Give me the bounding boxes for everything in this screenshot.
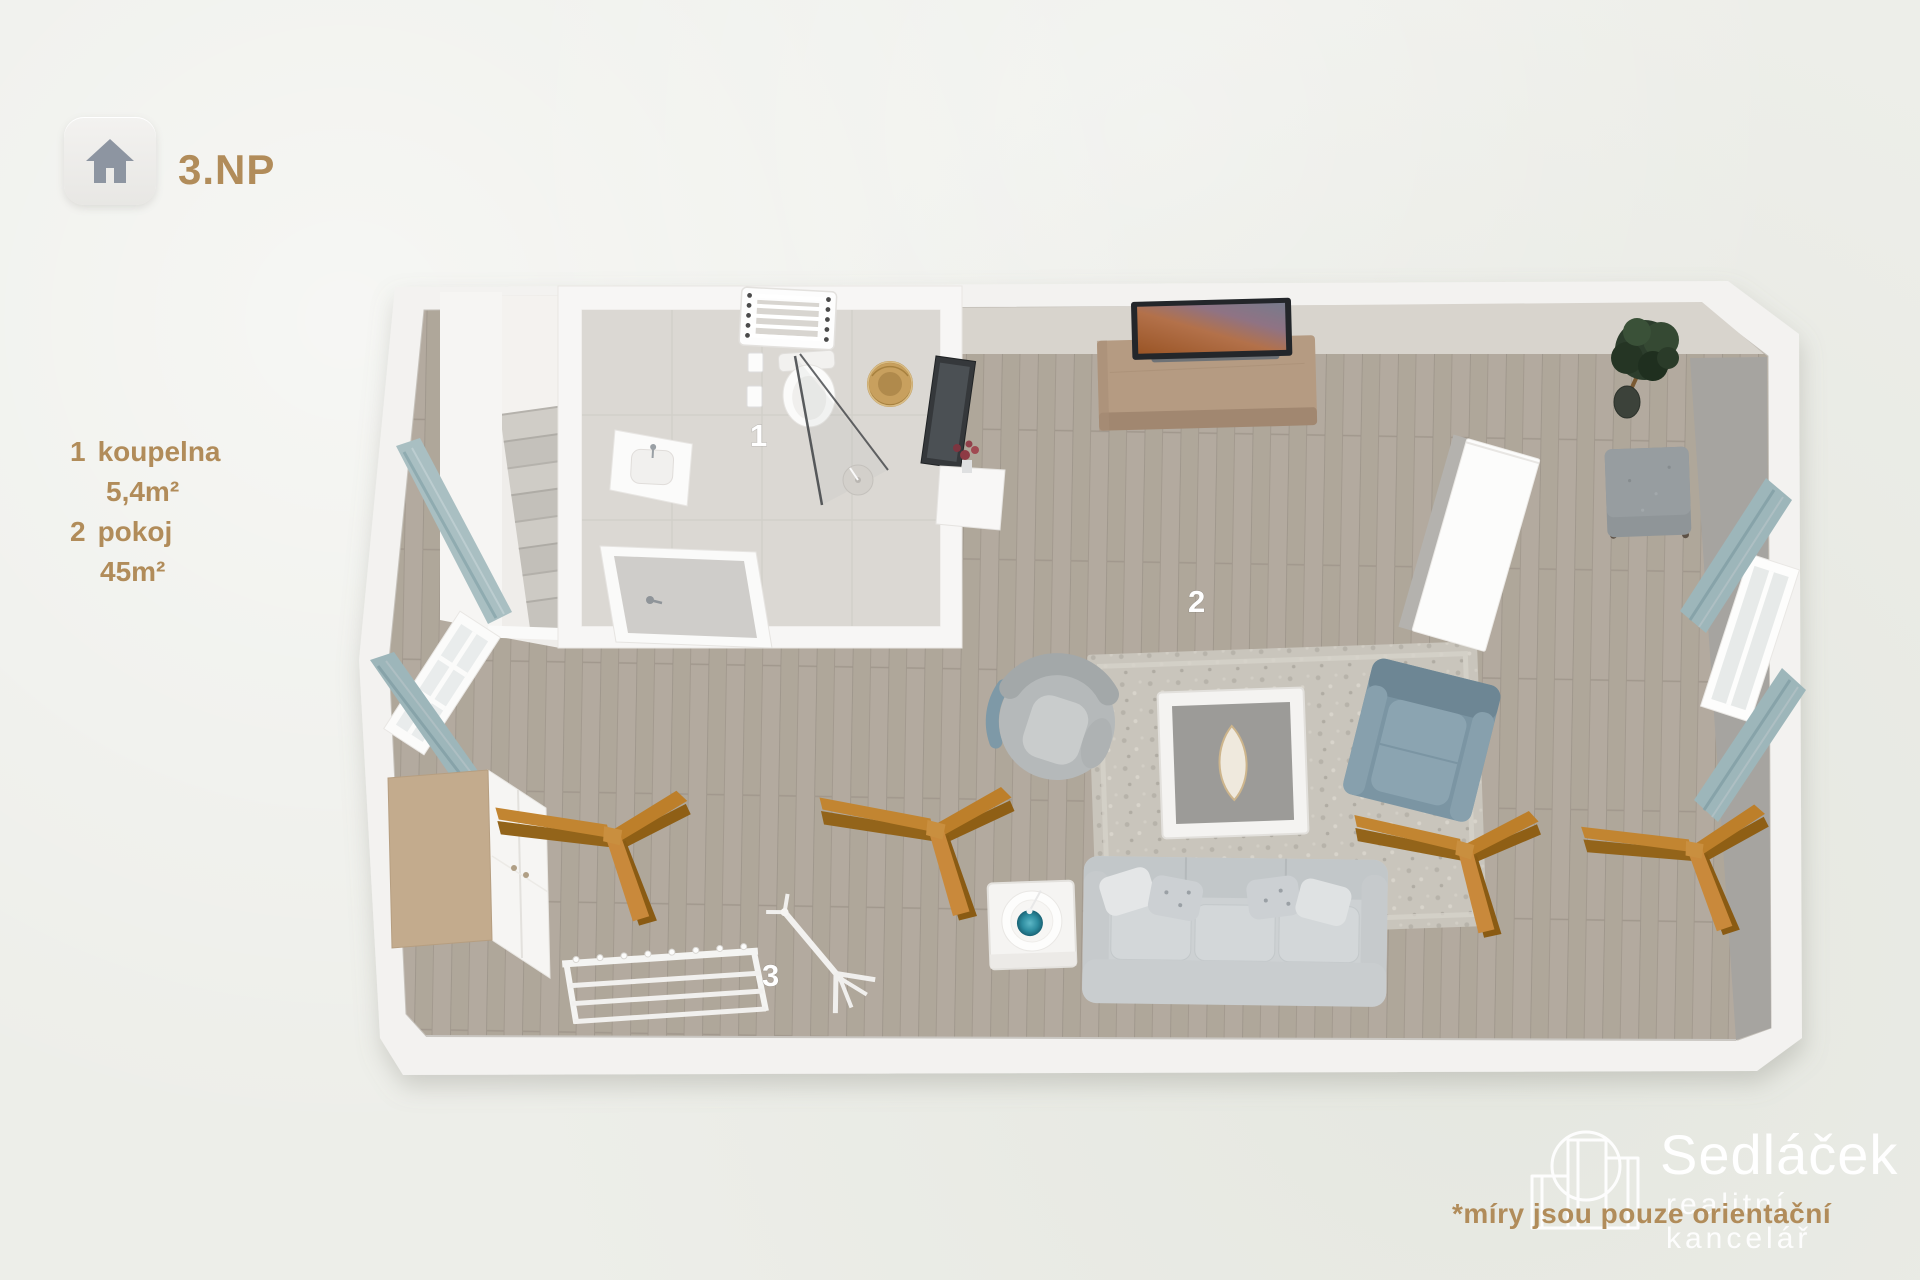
disclaimer-note: *míry jsou pouze orientační [1452,1198,1831,1230]
sofa [1082,856,1388,1007]
room-legend: 1koupelna 5,4m² 2pokoj 45m² [70,432,221,592]
brand-name: Sedláček [1660,1122,1898,1187]
floor-number-label: 3.NP [178,146,275,194]
legend-area-room: 45m² [70,552,221,592]
laundry-basket [868,362,912,406]
vase [962,460,972,473]
ottoman [1604,447,1691,541]
home-icon [84,136,136,186]
floor-plan-3d: 1 [0,0,1920,1280]
legend-area-bathroom: 5,4m² [70,472,221,512]
floor-selector-button[interactable] [64,117,156,205]
bathroom-door [600,546,772,648]
tv [1131,298,1293,363]
legend-number: 2 [70,516,86,547]
room-label-rack: 3 [762,958,779,993]
legend-name: pokoj [98,516,173,547]
legend-number: 1 [70,436,86,467]
side-table [988,881,1077,970]
legend-name: koupelna [98,436,221,467]
legend-item-room: 2pokoj [70,512,221,552]
coffee-table [1158,687,1309,838]
legend-item-bathroom: 1koupelna [70,432,221,472]
radiator [739,287,837,350]
room-label-living: 2 [1188,584,1205,619]
room-label-bathroom: 1 [750,418,767,453]
